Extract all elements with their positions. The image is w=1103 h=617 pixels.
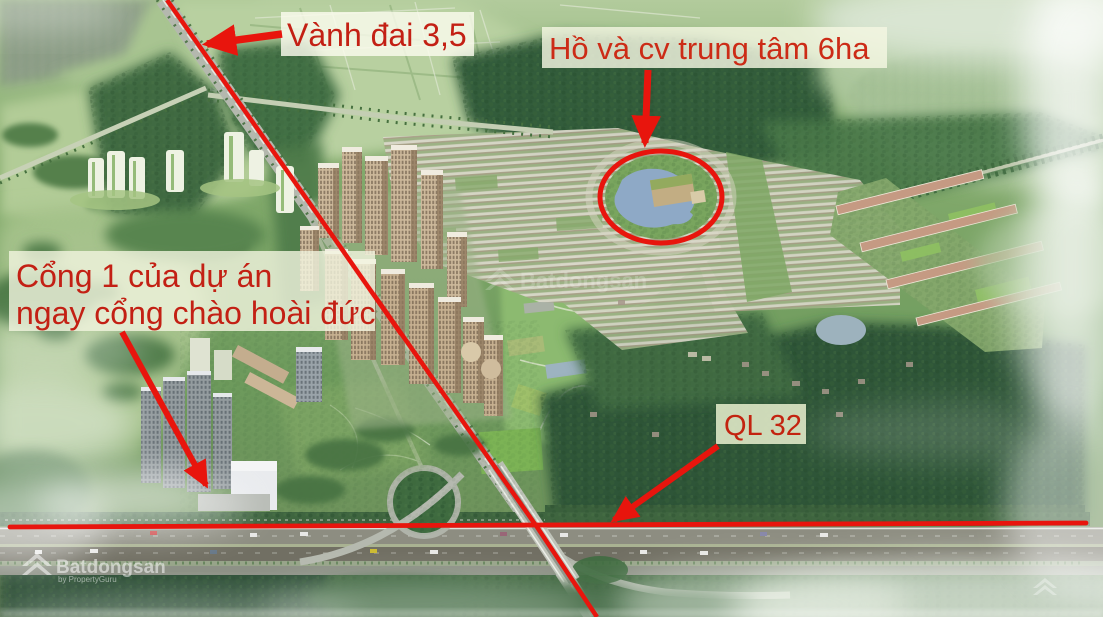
svg-text:Vành đai 3,5: Vành đai 3,5 [287,17,467,53]
svg-text:Hồ và cv trung tâm 6ha: Hồ và cv trung tâm 6ha [549,31,870,66]
svg-text:by PropertyGuru: by PropertyGuru [58,575,117,584]
svg-text:Batdongsan: Batdongsan [520,268,647,293]
svg-text:ngay cổng chào hoài đức: ngay cổng chào hoài đức [16,295,375,331]
svg-text:Cổng 1 của dự án: Cổng 1 của dự án [16,258,272,294]
svg-text:QL 32: QL 32 [724,410,802,442]
